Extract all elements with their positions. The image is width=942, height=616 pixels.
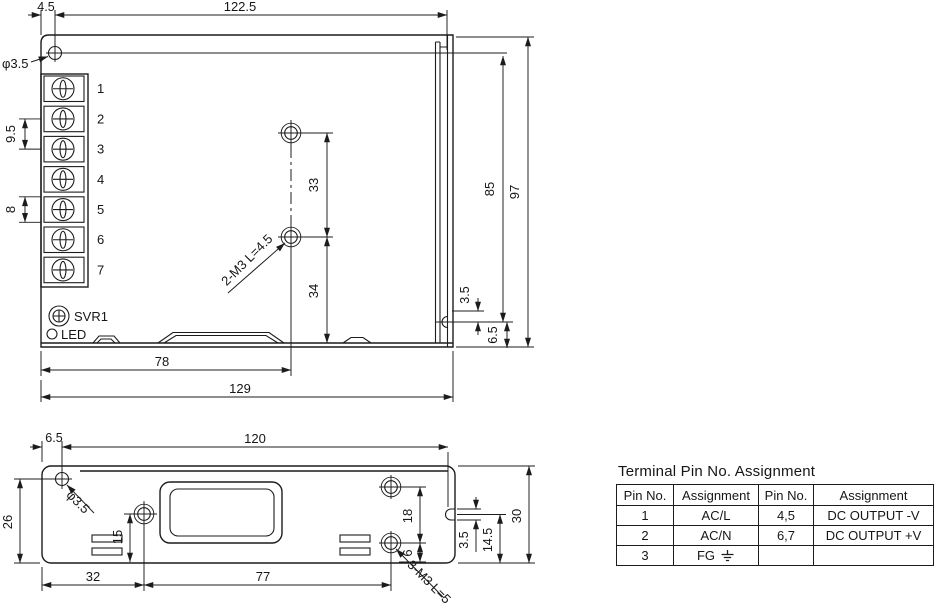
dimension-drawing-page: 1 2 3 4 5 6 7 SVR1 LED bbox=[0, 0, 942, 616]
svg-text:φ3.5: φ3.5 bbox=[2, 56, 29, 71]
terminal-number: 4 bbox=[97, 172, 104, 187]
dim-6-5-bv: 6.5 bbox=[30, 431, 63, 470]
svg-text:122.5: 122.5 bbox=[224, 0, 257, 14]
svg-text:78: 78 bbox=[155, 354, 169, 369]
dim-34: 34 bbox=[306, 237, 327, 343]
top-view-drawing: 1 2 3 4 5 6 7 SVR1 LED bbox=[2, 0, 534, 402]
svg-text:77: 77 bbox=[256, 569, 270, 584]
svg-text:φ3.5: φ3.5 bbox=[64, 487, 93, 516]
dim-9-5: 9.5 bbox=[3, 119, 41, 149]
bottom-view-drawing: φ3.5 3-M3 L=5 bbox=[0, 431, 535, 607]
base-mounting-holes bbox=[278, 120, 304, 376]
led-label: LED bbox=[61, 327, 86, 342]
dim-122-5: 122.5 bbox=[55, 0, 447, 15]
pin-cell: 4,5 bbox=[759, 506, 814, 526]
dim-77: 77 bbox=[144, 569, 391, 585]
col-header-assignment: Assignment bbox=[674, 485, 759, 506]
dim-6-5-side: 6.5 bbox=[486, 322, 507, 348]
table-header-row: Pin No. Assignment Pin No. Assignment bbox=[617, 485, 934, 506]
led-indicator bbox=[47, 329, 57, 339]
pin-cell: 6,7 bbox=[759, 526, 814, 546]
terminal-number: 5 bbox=[97, 202, 104, 217]
svg-text:9.5: 9.5 bbox=[3, 125, 18, 143]
assignment-cell: DC OUTPUT +V bbox=[814, 526, 934, 546]
svg-text:6: 6 bbox=[400, 549, 415, 556]
dim-33: 33 bbox=[303, 133, 333, 237]
svg-text:129: 129 bbox=[229, 381, 251, 396]
svg-text:3-M3 L=5: 3-M3 L=5 bbox=[404, 557, 454, 607]
svr-potentiometer bbox=[49, 306, 69, 326]
dim-26: 26 bbox=[0, 479, 53, 563]
dim-18: 18 bbox=[399, 487, 426, 543]
svg-text:97: 97 bbox=[507, 185, 522, 199]
dim-3-5-bv: 3.5 bbox=[457, 497, 481, 552]
pin-cell: 2 bbox=[617, 526, 674, 546]
svg-text:6.5: 6.5 bbox=[486, 326, 500, 343]
col-header-pin-no: Pin No. bbox=[617, 485, 674, 506]
svg-text:120: 120 bbox=[244, 431, 266, 446]
svg-text:14.5: 14.5 bbox=[481, 528, 495, 552]
chassis-feet bbox=[93, 333, 371, 344]
terminal-number: 3 bbox=[97, 142, 104, 157]
dim-120: 120 bbox=[62, 431, 448, 507]
assignment-cell: AC/N bbox=[674, 526, 759, 546]
assignment-cell: AC/L bbox=[674, 506, 759, 526]
svg-text:6.5: 6.5 bbox=[45, 431, 62, 445]
svg-text:30: 30 bbox=[509, 509, 524, 523]
dim-85: 85 bbox=[482, 56, 503, 322]
table-row: 1 AC/L 4,5 DC OUTPUT -V bbox=[617, 506, 934, 526]
svg-text:8: 8 bbox=[3, 206, 18, 213]
side-flange-lines bbox=[436, 35, 448, 347]
assignment-cell: DC OUTPUT -V bbox=[814, 506, 934, 526]
terminal-number: 7 bbox=[97, 262, 104, 277]
pin-assignment-table: Pin No. Assignment Pin No. Assignment 1 … bbox=[616, 484, 934, 566]
svg-text:85: 85 bbox=[482, 182, 497, 196]
svg-text:26: 26 bbox=[0, 515, 15, 529]
dim-78: 78 bbox=[41, 351, 291, 376]
side-notch bbox=[446, 509, 456, 520]
table-row: 3 FG bbox=[617, 546, 934, 566]
svg-text:15: 15 bbox=[110, 530, 125, 544]
terminal-number: 6 bbox=[97, 232, 104, 247]
svg-text:33: 33 bbox=[306, 178, 321, 192]
terminal-number: 1 bbox=[97, 81, 104, 96]
svg-text:18: 18 bbox=[400, 509, 415, 523]
dim-8: 8 bbox=[3, 197, 41, 223]
assignment-cell-fg: FG bbox=[674, 546, 759, 566]
pin-cell bbox=[759, 546, 814, 566]
svg-text:4.5: 4.5 bbox=[37, 0, 54, 14]
bottom-left-hole: φ3.5 bbox=[52, 469, 94, 516]
terminal-block: 1 2 3 4 5 6 7 bbox=[41, 74, 104, 287]
top-left-hole bbox=[46, 44, 64, 62]
pin-cell: 3 bbox=[617, 546, 674, 566]
fg-label: FG bbox=[697, 546, 715, 565]
pin-cell: 1 bbox=[617, 506, 674, 526]
table-row: 2 AC/N 6,7 DC OUTPUT +V bbox=[617, 526, 934, 546]
assignment-cell bbox=[814, 546, 934, 566]
svg-text:34: 34 bbox=[306, 284, 321, 298]
bottom-mid-hole bbox=[124, 501, 157, 591]
terminal-assignment-section: Terminal Pin No. Assignment Pin No. Assi… bbox=[616, 463, 935, 566]
dim-129: 129 bbox=[41, 351, 453, 402]
svg-text:3.5: 3.5 bbox=[458, 286, 472, 303]
label-3-m3: 3-M3 L=5 bbox=[396, 549, 454, 607]
col-header-pin-no-2: Pin No. bbox=[759, 485, 814, 506]
svr-label: SVR1 bbox=[74, 309, 108, 324]
earth-ground-icon bbox=[720, 549, 735, 562]
col-header-assignment-2: Assignment bbox=[814, 485, 934, 506]
dim-32: 32 bbox=[42, 567, 144, 591]
bottom-opening bbox=[160, 482, 282, 543]
svg-text:2-M3 L=4.5: 2-M3 L=4.5 bbox=[218, 231, 275, 288]
svg-text:3.5: 3.5 bbox=[457, 531, 471, 548]
label-2-m3: 2-M3 L=4.5 bbox=[218, 231, 285, 293]
vent-slots bbox=[92, 535, 370, 555]
side-screw-hole bbox=[436, 317, 452, 328]
dim-3-5-side: 3.5 bbox=[452, 286, 513, 335]
bottom-right-holes bbox=[379, 475, 403, 591]
svg-text:32: 32 bbox=[86, 569, 100, 584]
terminal-number: 2 bbox=[97, 111, 104, 126]
table-title: Terminal Pin No. Assignment bbox=[618, 463, 935, 480]
